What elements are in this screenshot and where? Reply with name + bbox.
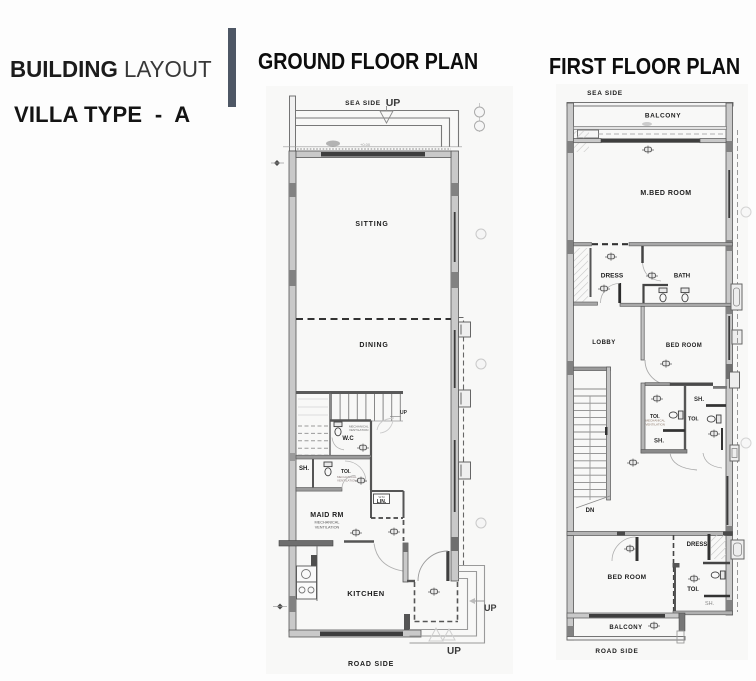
svg-text:LIN.: LIN. bbox=[377, 499, 387, 505]
svg-text:SEA SIDE: SEA SIDE bbox=[587, 90, 623, 97]
svg-text:LOBBY: LOBBY bbox=[592, 340, 616, 346]
svg-text:SH.: SH. bbox=[654, 439, 664, 445]
svg-text:BATH: BATH bbox=[674, 274, 690, 280]
svg-text:VENTILATION: VENTILATION bbox=[349, 428, 368, 432]
svg-text:DN: DN bbox=[586, 508, 595, 514]
svg-text:SEA SIDE: SEA SIDE bbox=[345, 100, 381, 107]
svg-text:SH.: SH. bbox=[694, 397, 704, 403]
svg-text:UP: UP bbox=[484, 603, 497, 613]
svg-text:VENTILATION: VENTILATION bbox=[337, 479, 356, 483]
svg-text:TOI.: TOI. bbox=[688, 417, 699, 423]
svg-text:MAID RM: MAID RM bbox=[310, 512, 344, 519]
svg-text:DRESS: DRESS bbox=[687, 542, 708, 548]
svg-text:ROAD SIDE: ROAD SIDE bbox=[348, 661, 394, 668]
svg-text:UP: UP bbox=[447, 646, 461, 657]
svg-text:+0.00: +0.00 bbox=[360, 142, 371, 147]
svg-text:M.BED ROOM: M.BED ROOM bbox=[640, 190, 691, 197]
svg-text:VENTILATION: VENTILATION bbox=[646, 423, 665, 427]
svg-text:UP: UP bbox=[400, 410, 408, 416]
svg-text:VENTILATION: VENTILATION bbox=[315, 526, 340, 530]
svg-text:BED ROOM: BED ROOM bbox=[608, 574, 647, 581]
svg-text:MECHANICAL: MECHANICAL bbox=[315, 521, 340, 525]
svg-text:SH.: SH. bbox=[705, 601, 715, 607]
svg-text:DINING: DINING bbox=[359, 342, 388, 349]
svg-text:TOI.: TOI. bbox=[687, 587, 699, 593]
svg-text:ROAD SIDE: ROAD SIDE bbox=[595, 648, 638, 655]
svg-text:KITCHEN: KITCHEN bbox=[347, 589, 385, 598]
svg-text:UP: UP bbox=[386, 97, 401, 109]
svg-text:DRESS: DRESS bbox=[601, 273, 624, 280]
svg-text:BED ROOM: BED ROOM bbox=[666, 343, 702, 349]
svg-text:BALCONY: BALCONY bbox=[645, 113, 681, 120]
svg-text:SITTING: SITTING bbox=[355, 221, 388, 228]
svg-text:SH.: SH. bbox=[299, 466, 309, 472]
svg-text:BALCONY: BALCONY bbox=[609, 625, 642, 631]
svg-text:W.C: W.C bbox=[342, 436, 354, 442]
